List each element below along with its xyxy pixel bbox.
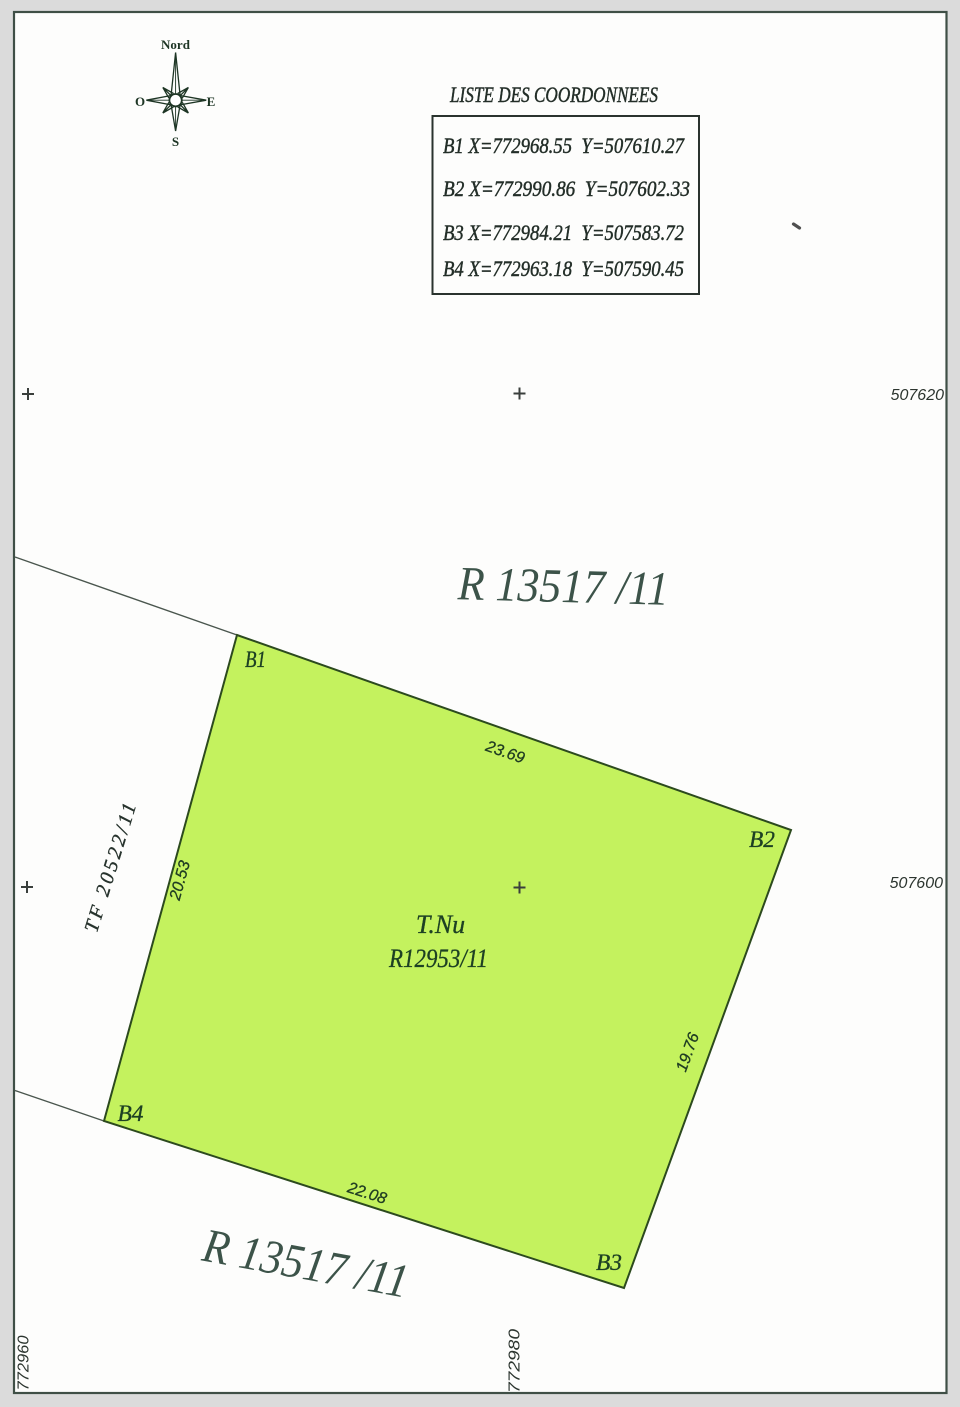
svg-text:B4 X=772963.18 Y=507590.45: B4 X=772963.18 Y=507590.45 <box>443 256 684 281</box>
svg-text:772960: 772960 <box>16 1335 33 1390</box>
svg-text:R 13517 /11: R 13517 /11 <box>456 557 669 616</box>
svg-text:S: S <box>172 134 179 149</box>
svg-text:507620: 507620 <box>891 387 944 404</box>
svg-text:772980: 772980 <box>507 1329 524 1393</box>
svg-text:Nord: Nord <box>161 37 191 52</box>
svg-text:R12953/11: R12953/11 <box>388 944 488 973</box>
svg-text:B3: B3 <box>596 1250 622 1275</box>
svg-text:B1 X=772968.55 Y=507610.27: B1 X=772968.55 Y=507610.27 <box>443 133 685 158</box>
svg-text:T.Nu: T.Nu <box>416 910 465 939</box>
svg-text:O: O <box>135 94 145 109</box>
svg-text:B2 X=772990.86 Y=507602.33: B2 X=772990.86 Y=507602.33 <box>443 176 690 201</box>
svg-text:B3 X=772984.21 Y=507583.72: B3 X=772984.21 Y=507583.72 <box>443 220 684 245</box>
svg-text:LISTE DES COORDONNEES: LISTE DES COORDONNEES <box>449 82 658 107</box>
svg-text:B1: B1 <box>245 647 266 672</box>
svg-text:E: E <box>207 94 216 109</box>
svg-text:B2: B2 <box>749 827 775 852</box>
svg-text:507600: 507600 <box>890 875 943 892</box>
svg-text:B4: B4 <box>118 1101 144 1126</box>
